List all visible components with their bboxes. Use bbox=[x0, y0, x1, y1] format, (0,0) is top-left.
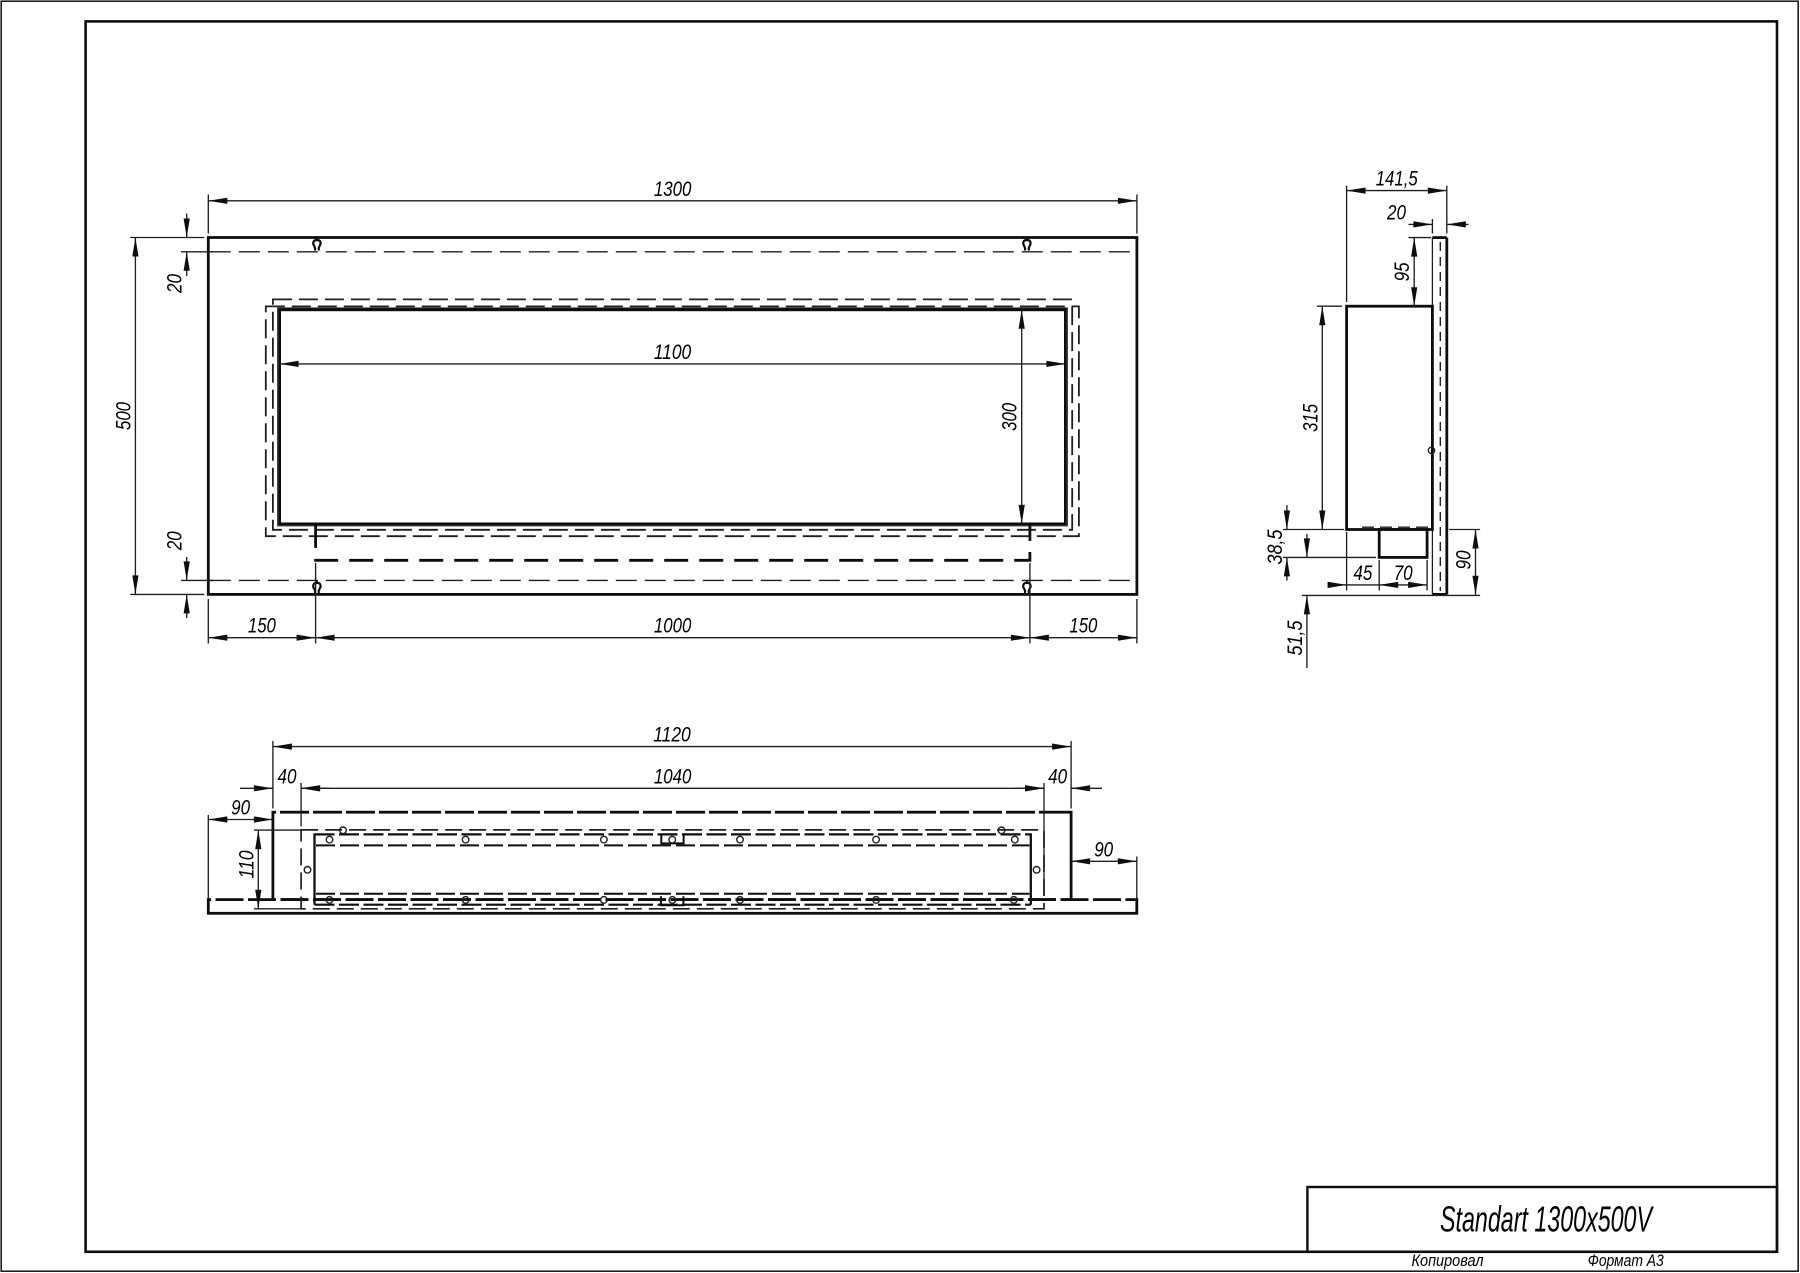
svg-text:1100: 1100 bbox=[654, 340, 692, 364]
svg-text:Standart 1300x500V: Standart 1300x500V bbox=[1440, 1199, 1654, 1240]
svg-text:110: 110 bbox=[234, 850, 258, 878]
svg-text:20: 20 bbox=[163, 531, 187, 551]
svg-text:38,5: 38,5 bbox=[1263, 529, 1287, 565]
svg-text:150: 150 bbox=[1069, 614, 1097, 638]
svg-text:51,5: 51,5 bbox=[1283, 620, 1307, 656]
svg-text:70: 70 bbox=[1394, 561, 1413, 585]
svg-text:40: 40 bbox=[278, 764, 297, 788]
svg-text:150: 150 bbox=[248, 614, 276, 638]
svg-text:90: 90 bbox=[1094, 837, 1113, 861]
svg-text:500: 500 bbox=[111, 402, 135, 430]
svg-text:Копировал: Копировал bbox=[1412, 1252, 1484, 1270]
svg-text:40: 40 bbox=[1048, 764, 1067, 788]
svg-text:300: 300 bbox=[998, 403, 1022, 431]
svg-text:141,5: 141,5 bbox=[1376, 167, 1419, 191]
svg-text:90: 90 bbox=[231, 796, 250, 820]
svg-text:1000: 1000 bbox=[654, 614, 692, 638]
svg-text:315: 315 bbox=[1298, 403, 1322, 432]
svg-text:20: 20 bbox=[1386, 200, 1406, 224]
svg-text:1120: 1120 bbox=[653, 723, 691, 747]
svg-text:45: 45 bbox=[1353, 561, 1373, 585]
svg-text:Формат А3: Формат А3 bbox=[1588, 1252, 1665, 1270]
svg-text:1040: 1040 bbox=[654, 764, 692, 788]
svg-text:95: 95 bbox=[1390, 262, 1414, 282]
svg-text:90: 90 bbox=[1452, 550, 1476, 569]
svg-text:20: 20 bbox=[163, 274, 187, 294]
svg-text:1300: 1300 bbox=[654, 177, 692, 201]
